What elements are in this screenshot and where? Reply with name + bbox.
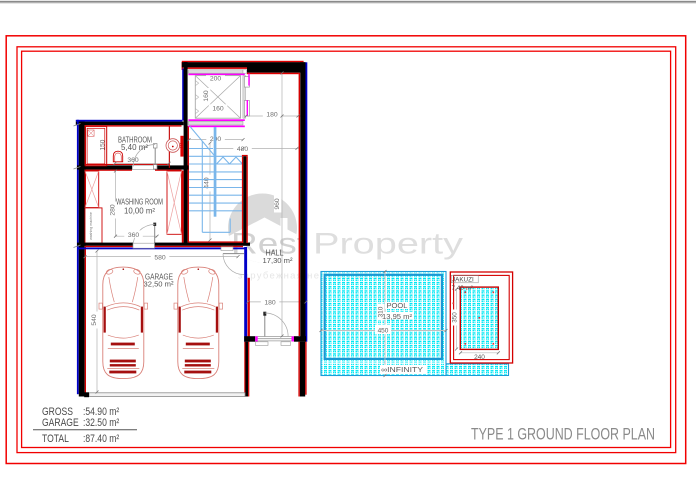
svg-text::87.40 m²: :87.40 m² xyxy=(83,433,120,445)
svg-text:310: 310 xyxy=(378,306,385,317)
svg-text:GARAGE: GARAGE xyxy=(42,417,79,429)
svg-text:7,40 m²: 7,40 m² xyxy=(452,285,473,292)
svg-text:JAKUZI: JAKUZI xyxy=(452,277,474,284)
svg-text:540: 540 xyxy=(91,314,98,326)
svg-text:Property: Property xyxy=(313,228,463,261)
svg-text:WASHING ROOM: WASHING ROOM xyxy=(116,197,163,206)
svg-text:13,95 m²: 13,95 m² xyxy=(382,314,413,321)
svg-text:580: 580 xyxy=(154,254,166,261)
svg-text:240: 240 xyxy=(474,354,485,361)
svg-text:440: 440 xyxy=(204,177,211,189)
svg-text:TOTAL: TOTAL xyxy=(42,433,69,445)
svg-text:10,00 m²: 10,00 m² xyxy=(124,206,155,215)
svg-text:180: 180 xyxy=(266,112,278,119)
svg-text:POOL: POOL xyxy=(387,303,408,310)
svg-text:960: 960 xyxy=(274,198,281,210)
svg-text:5,40 m²: 5,40 m² xyxy=(121,143,148,152)
svg-text:17,30 m²: 17,30 m² xyxy=(263,256,293,265)
svg-text:200: 200 xyxy=(210,75,222,82)
svg-text:350: 350 xyxy=(452,312,459,323)
svg-text:∞INFINITY: ∞INFINITY xyxy=(381,367,423,374)
svg-text:360: 360 xyxy=(128,232,140,239)
svg-text:450: 450 xyxy=(378,328,389,335)
svg-text::32.50 m²: :32.50 m² xyxy=(83,417,120,429)
svg-text:TYPE 1 GROUND FLOOR PLAN: TYPE 1 GROUND FLOOR PLAN xyxy=(471,425,655,444)
svg-text:160: 160 xyxy=(212,106,224,113)
svg-text:180: 180 xyxy=(264,299,276,306)
svg-text:32,50 m²: 32,50 m² xyxy=(144,280,174,289)
svg-text:160: 160 xyxy=(203,90,210,102)
svg-text:150: 150 xyxy=(100,139,107,150)
svg-text:280: 280 xyxy=(110,204,117,216)
svg-text:480: 480 xyxy=(237,146,249,153)
svg-text:washing machine: washing machine xyxy=(89,212,93,240)
svg-text:360: 360 xyxy=(127,157,139,164)
